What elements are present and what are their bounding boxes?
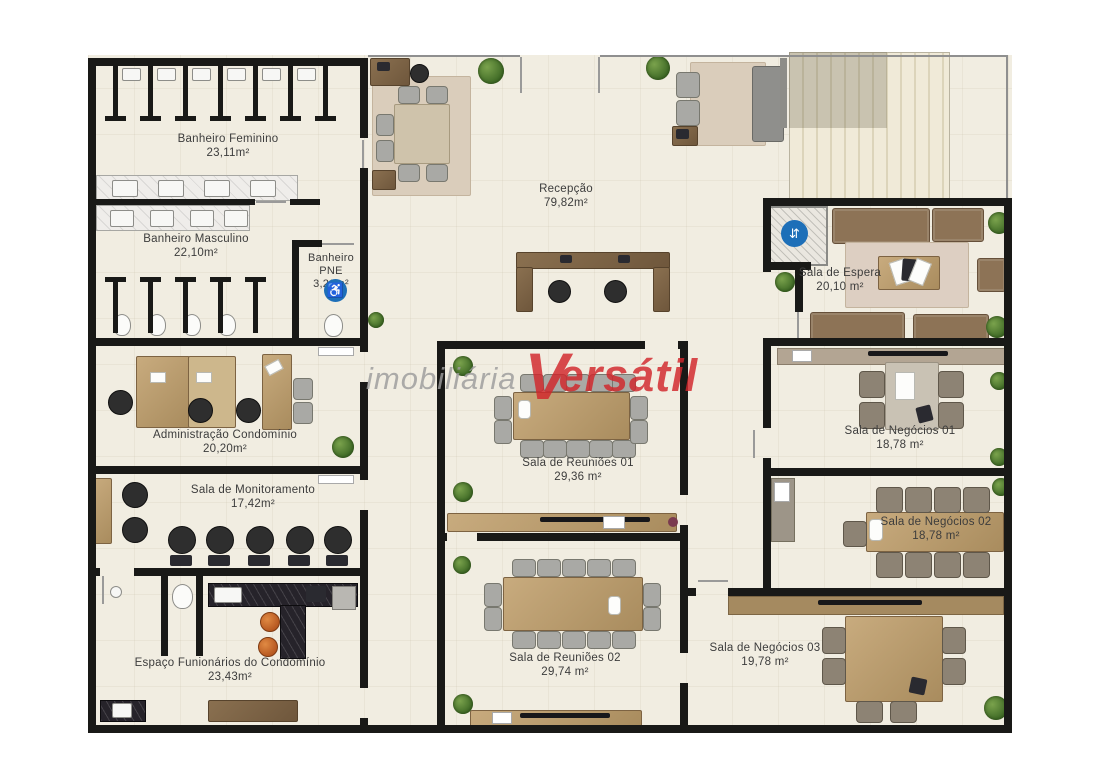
chair (942, 627, 966, 654)
chair (293, 378, 313, 400)
room-label-banheiro-feminino: Banheiro Feminino 23,11m² (178, 132, 279, 160)
glass-wall (600, 55, 1007, 57)
wall (680, 341, 688, 495)
wall (477, 533, 688, 541)
stall-door (210, 116, 231, 121)
desk-phone (560, 255, 572, 263)
chair (905, 487, 932, 513)
plant (646, 56, 670, 80)
stall-door (175, 116, 196, 121)
chair (398, 164, 420, 182)
chair (630, 420, 648, 444)
credenza (447, 513, 677, 532)
sink (224, 210, 248, 227)
door-leaf (753, 430, 755, 458)
console-desk (288, 555, 310, 566)
chair (822, 627, 846, 654)
chair (566, 374, 590, 392)
console-desk (326, 555, 348, 566)
stall-partition (253, 281, 258, 333)
document (895, 372, 915, 400)
office-chair (236, 398, 261, 423)
door-leaf (698, 580, 728, 582)
room-name: Banheiro Masculino (143, 232, 249, 246)
wall (437, 341, 645, 349)
room-name: PNE (308, 265, 354, 278)
laptop (377, 62, 390, 71)
chair (293, 402, 313, 424)
stall-door (315, 116, 336, 121)
wall (763, 338, 1012, 346)
wall (763, 458, 771, 590)
wall-vent (792, 350, 812, 362)
room-label-reunioes-01: Sala de Reuniões 01 29,36 m² (522, 456, 634, 484)
chair (934, 552, 961, 578)
meeting-table (503, 577, 643, 631)
wall-vent (774, 482, 790, 502)
wall (360, 58, 368, 138)
side-table (372, 170, 396, 190)
wall (292, 240, 322, 247)
room-label-reunioes-02: Sala de Reuniões 02 29,74 m² (509, 651, 621, 679)
wall (88, 58, 96, 733)
room-name: Sala de Negócios 01 (845, 424, 956, 438)
wall (680, 683, 688, 733)
sink (190, 210, 214, 227)
office-chair (286, 526, 314, 554)
wall (763, 198, 771, 272)
wall (196, 576, 203, 656)
chair (856, 701, 883, 723)
chair (512, 559, 536, 577)
keyboard (196, 372, 212, 383)
office-chair (604, 280, 627, 303)
chair (890, 701, 917, 723)
sink (204, 180, 230, 197)
sofa (810, 312, 905, 341)
room-area: 18,78 m² (845, 438, 956, 452)
sink (250, 180, 276, 197)
tv (520, 713, 610, 718)
chair (963, 552, 990, 578)
room-area: 79,82m² (539, 196, 593, 210)
stall-partition (218, 281, 223, 333)
room-label-espaco-funcionarios: Espaço Funionários do Condomínio 23,43m² (135, 656, 326, 684)
room-name: Banheiro Feminino (178, 132, 279, 146)
plant (453, 556, 471, 574)
table (208, 700, 298, 722)
room-area: 23,11m² (178, 146, 279, 160)
desk (136, 356, 190, 428)
chair (630, 396, 648, 420)
chair (843, 521, 867, 547)
toilet (262, 68, 281, 81)
room-name: Sala de Negócios 03 (710, 641, 821, 655)
stall-partition (183, 66, 188, 120)
wall (88, 568, 100, 576)
room-area: 20,10 m² (799, 280, 881, 294)
wall-vent (318, 347, 354, 356)
chair (484, 583, 502, 607)
stool (260, 612, 280, 632)
plant (453, 356, 473, 376)
kitchen-counter (280, 605, 306, 659)
room-name: Sala de Reuniões 01 (522, 456, 634, 470)
entry-door-leaf (598, 57, 600, 93)
stall-door (245, 116, 266, 121)
sink (112, 703, 132, 718)
wall (88, 58, 368, 66)
stall-door (210, 277, 231, 282)
room-label-banheiro-masculino: Banheiro Masculino 22,10m² (143, 232, 249, 260)
stall-door (105, 116, 126, 121)
room-area: 19,78 m² (710, 655, 821, 669)
stair-rail (780, 58, 787, 128)
wall (680, 525, 688, 653)
stall-door (280, 116, 301, 121)
chair (676, 100, 700, 126)
wall (134, 568, 368, 576)
console-desk (208, 555, 230, 566)
sink (158, 180, 184, 197)
wall-vent (492, 712, 512, 724)
wall (1004, 198, 1012, 733)
room-label-monitoramento: Sala de Monitoramento 17,42m² (191, 483, 315, 511)
room-area: 17,42m² (191, 497, 315, 511)
armchair (977, 258, 1006, 292)
chair (484, 607, 502, 631)
office-chair (246, 526, 274, 554)
door-knob (668, 517, 678, 527)
stall-door (140, 277, 161, 282)
entry-door-leaf (520, 57, 522, 93)
chair (562, 559, 586, 577)
room-name: Sala de Espera (799, 266, 881, 280)
shower (110, 586, 122, 598)
wall (360, 382, 368, 480)
room-label-recepcao: Recepção 79,82m² (539, 182, 593, 210)
toilet (297, 68, 316, 81)
wall (88, 466, 368, 474)
lounge-table (394, 104, 450, 164)
laptop (909, 677, 928, 696)
room-area: 22,10m² (143, 246, 249, 260)
room-label-negocios-02: Sala de Negócios 02 18,78 m² (881, 515, 992, 543)
plant (453, 482, 473, 502)
door-leaf (322, 243, 354, 245)
pitcher (518, 400, 531, 419)
stall-partition (148, 281, 153, 333)
room-name: Sala de Monitoramento (191, 483, 315, 497)
chair (612, 374, 636, 392)
wall (437, 533, 447, 541)
room-label-negocios-01: Sala de Negócios 01 18,78 m² (845, 424, 956, 452)
plant (775, 272, 795, 292)
toilet-pne (324, 314, 343, 337)
elevator-icon: ⇵ (781, 220, 808, 247)
tv (818, 600, 922, 605)
office-chair (168, 526, 196, 554)
chair (587, 559, 611, 577)
wall (161, 576, 168, 656)
wall (728, 588, 1012, 596)
room-name: Administração Condomínio (153, 428, 297, 442)
room-area: 29,74 m² (509, 665, 621, 679)
stall-door (140, 116, 161, 121)
sink (110, 210, 134, 227)
sofa (932, 208, 984, 242)
wall (763, 346, 771, 428)
office-chair (548, 280, 571, 303)
chair (876, 552, 903, 578)
plant (368, 312, 384, 328)
chair (643, 607, 661, 631)
office-chair (122, 517, 148, 543)
laptop (676, 129, 689, 139)
reception-desk (516, 267, 533, 312)
chair (426, 164, 448, 182)
room-name: Sala de Negócios 02 (881, 515, 992, 529)
sideboard (728, 596, 1004, 615)
side-desk (370, 58, 410, 86)
chair (676, 72, 700, 98)
door-leaf (362, 140, 364, 168)
stall-partition (218, 66, 223, 120)
plant (332, 436, 354, 458)
chair (494, 420, 512, 444)
room-label-sala-de-espera: Sala de Espera 20,10 m² (799, 266, 881, 294)
wall (360, 240, 368, 345)
chair (520, 374, 544, 392)
sink (112, 180, 138, 197)
stall-partition (323, 66, 328, 120)
chair (643, 583, 661, 607)
room-area: 20,20m² (153, 442, 297, 456)
chair (426, 86, 448, 104)
office-chair (324, 526, 352, 554)
chair (612, 559, 636, 577)
stall-partition (148, 66, 153, 120)
wall (88, 199, 255, 205)
room-name: Espaço Funionários do Condomínio (135, 656, 326, 670)
keyboard (150, 372, 166, 383)
room-name: Sala de Reuniões 02 (509, 651, 621, 665)
meeting-table (845, 616, 943, 702)
console-desk (248, 555, 270, 566)
room-label-negocios-03: Sala de Negócios 03 19,78 m² (710, 641, 821, 669)
wall (763, 198, 1012, 206)
room-name: Recepção (539, 182, 593, 196)
door-leaf (797, 312, 799, 340)
stall-partition (183, 281, 188, 333)
desk-phone (618, 255, 630, 263)
plant (453, 694, 473, 714)
floor-plan: ⇵ (0, 0, 1100, 777)
reception-desk (653, 267, 670, 312)
office-chair (122, 482, 148, 508)
toilet (192, 68, 211, 81)
chair (942, 658, 966, 685)
wall (360, 718, 368, 733)
staircase-upper-flight (789, 52, 887, 128)
wall (290, 199, 320, 205)
reception-desk (516, 252, 670, 269)
stall-door (245, 277, 266, 282)
stove (306, 586, 326, 602)
chair (934, 487, 961, 513)
room-name: Banheiro (308, 252, 354, 265)
stool (258, 637, 278, 657)
wall (763, 468, 1012, 476)
tv (868, 351, 948, 356)
chair (822, 658, 846, 685)
sofa (832, 208, 930, 244)
chair (494, 396, 512, 420)
fridge (332, 586, 356, 610)
toilet (157, 68, 176, 81)
glass-wall (368, 55, 520, 57)
chair (376, 114, 394, 136)
room-label-administracao: Administração Condomínio 20,20m² (153, 428, 297, 456)
elevator-glyph: ⇵ (789, 226, 800, 242)
room-area: 18,78 m² (881, 529, 992, 543)
door-leaf (256, 201, 286, 203)
stall-partition (288, 66, 293, 120)
chair (963, 487, 990, 513)
room-area: 23,43m² (135, 670, 326, 684)
wall (360, 510, 368, 688)
chair (587, 631, 611, 649)
chair (398, 86, 420, 104)
sink (150, 210, 174, 227)
office-chair (108, 390, 133, 415)
stall-partition (113, 281, 118, 333)
kitchen-sink (214, 587, 242, 603)
stall-partition (113, 66, 118, 120)
door-leaf (102, 576, 104, 604)
office-chair (410, 64, 429, 83)
wall-vent (603, 516, 625, 529)
room-area: 29,36 m² (522, 470, 634, 484)
office-chair (206, 526, 234, 554)
plant (478, 58, 504, 84)
tv (540, 517, 650, 522)
chair (612, 631, 636, 649)
stall-door (105, 277, 126, 282)
wall (88, 725, 1012, 733)
wall (292, 240, 299, 345)
chair (562, 631, 586, 649)
wall (88, 338, 368, 346)
chair (859, 371, 885, 398)
office-chair (188, 398, 213, 423)
wall (688, 588, 696, 596)
pitcher (608, 596, 621, 615)
chair (589, 374, 613, 392)
stall-door (175, 277, 196, 282)
wall (360, 168, 368, 240)
wall (360, 338, 368, 352)
toilet (172, 584, 193, 609)
chair (537, 631, 561, 649)
chair (543, 374, 567, 392)
chair (537, 559, 561, 577)
wall-vent (318, 475, 354, 484)
wheelchair-glyph: ♿ (327, 282, 344, 299)
chair (876, 487, 903, 513)
accessibility-icon: ♿ (324, 279, 347, 302)
stall-partition (253, 66, 258, 120)
chair (905, 552, 932, 578)
chair (938, 371, 964, 398)
toilet (227, 68, 246, 81)
console-desk (170, 555, 192, 566)
toilet (122, 68, 141, 81)
chair (376, 140, 394, 162)
chair (512, 631, 536, 649)
glass-wall (1006, 55, 1008, 198)
